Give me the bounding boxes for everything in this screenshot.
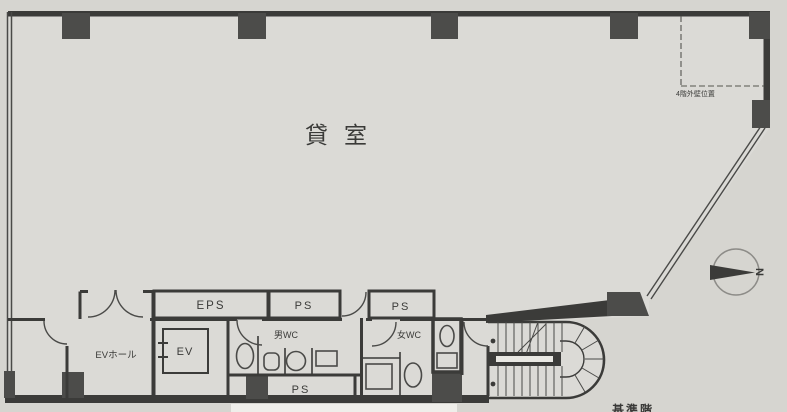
- eps-label: EPS: [196, 300, 225, 312]
- column: [431, 13, 458, 39]
- shaft-block: [432, 373, 462, 402]
- ev-hall-label: EVホール: [95, 350, 137, 361]
- column: [749, 12, 770, 39]
- compass-icon: N: [710, 249, 765, 295]
- floor-plan-sheet: N 貸室 EPS PS PS PS 男WC 女WC EV EVホール 4階外壁位…: [0, 0, 787, 412]
- caption-label: 基準階: [611, 402, 654, 412]
- ps-top-left-label: PS: [295, 300, 314, 312]
- page-edge: [231, 404, 457, 412]
- main-room-label: 貸室: [305, 122, 383, 148]
- stair-post: [491, 339, 496, 344]
- floor-area: [8, 12, 770, 398]
- floor-plan-drawing: N 貸室 EPS PS PS PS 男WC 女WC EV EVホール 4階外壁位…: [0, 0, 787, 412]
- wc-women-label: 女WC: [397, 329, 421, 340]
- column: [4, 371, 15, 398]
- ps-top-right-label: PS: [392, 301, 411, 313]
- north-needle: [710, 265, 755, 280]
- column: [62, 13, 90, 39]
- shaft-block: [246, 374, 268, 399]
- ps-bottom-label: PS: [292, 384, 311, 396]
- compass-north-label: N: [753, 268, 765, 276]
- column: [752, 100, 770, 128]
- top-wall: [8, 11, 770, 17]
- column: [238, 13, 266, 39]
- stair-post: [491, 382, 496, 387]
- ev-label: EV: [177, 346, 194, 358]
- column: [610, 13, 638, 39]
- stair-landing-slot: [496, 356, 553, 362]
- annotation-4f-wall-label: 4階外壁位置: [676, 89, 715, 98]
- column: [62, 372, 84, 398]
- wc-men-label: 男WC: [274, 330, 298, 340]
